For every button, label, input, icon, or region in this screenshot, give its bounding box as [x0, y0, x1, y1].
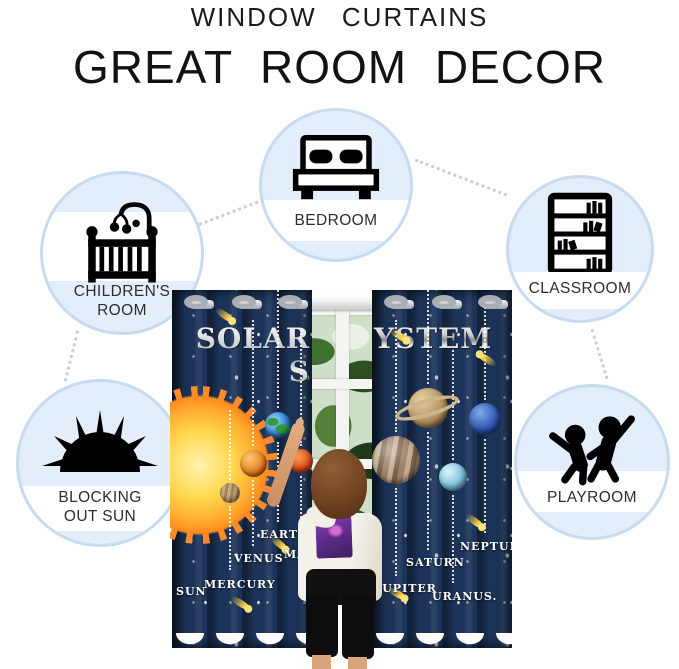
- planet-label-venus: VENUS: [234, 552, 284, 565]
- boy-pant-leg-left: [306, 595, 338, 657]
- bed-icon: [290, 135, 382, 201]
- planet-venus: [240, 450, 267, 477]
- planet-jupiter: [372, 436, 420, 484]
- boy-calf-right: [348, 657, 367, 669]
- planet-mercury: [220, 483, 240, 503]
- curtain-hem: [170, 633, 314, 649]
- grommet: [278, 295, 302, 309]
- curtain-headline-right: YSTEM: [372, 322, 512, 355]
- playing-kids-icon: [540, 407, 644, 491]
- page-title: GREAT ROOM DECOR: [0, 40, 679, 94]
- planet-label-mercury: MERCURY: [204, 578, 276, 591]
- subtitle: WINDOW CURTAINS: [0, 2, 679, 33]
- planet-neptune: [469, 403, 501, 435]
- feature-bubble-blocking-out-sun: BLOCKINGOUT SUN: [16, 379, 184, 547]
- crib-icon: [70, 198, 174, 290]
- curtain-product-photo: SOLAR S SUN MERCURY VENUS EARTH MARS: [170, 283, 512, 669]
- connector-bedroom-classroom: [415, 159, 508, 197]
- feature-bubble-bedroom: BEDROOM: [259, 108, 413, 262]
- bubble-label: BEDROOM: [262, 212, 410, 231]
- comet: [464, 512, 486, 531]
- boy-calf-left: [312, 655, 331, 669]
- bubble-label: BLOCKINGOUT SUN: [19, 489, 181, 526]
- connector-classroom-playroom: [590, 329, 608, 380]
- sun-icon: [40, 410, 160, 474]
- grommet: [432, 295, 456, 309]
- connector-childrens-blocking: [64, 330, 79, 381]
- planet-uranus: [439, 463, 467, 491]
- planet-saturn: [408, 388, 448, 428]
- planet-label-jupiter: JUPITER: [376, 582, 437, 595]
- planet-label-saturn: SATURN: [406, 556, 465, 569]
- feature-bubble-playroom: PLAYROOM: [514, 384, 670, 540]
- grommet: [478, 295, 502, 309]
- boy-head: [311, 449, 367, 519]
- grommet: [384, 295, 408, 309]
- comet: [230, 595, 252, 613]
- planet-earth: [265, 412, 291, 438]
- planet-label-uranus: URANUS.: [432, 590, 497, 603]
- curtain-hem: [370, 633, 512, 649]
- feature-bubble-classroom: CLASSROOM: [506, 175, 654, 323]
- grommet: [232, 295, 256, 309]
- bubble-label: PLAYROOM: [517, 489, 667, 508]
- planet-label-sun: SUN: [176, 585, 207, 598]
- boy-pant-leg-right: [342, 595, 374, 659]
- planet-label-neptune: NEPTUN: [460, 540, 512, 553]
- product-infographic: WINDOW CURTAINS GREAT ROOM DECOR BEDROOM: [0, 0, 679, 669]
- bubble-label: CLASSROOM: [509, 280, 651, 299]
- curtain-headline-left: SOLAR S: [172, 322, 312, 388]
- grommet: [184, 295, 208, 309]
- curtain-panel-right: YSTEM JUPITER SATURN URANUS. NEPTUN: [372, 290, 512, 648]
- bookshelf-icon: [547, 192, 613, 276]
